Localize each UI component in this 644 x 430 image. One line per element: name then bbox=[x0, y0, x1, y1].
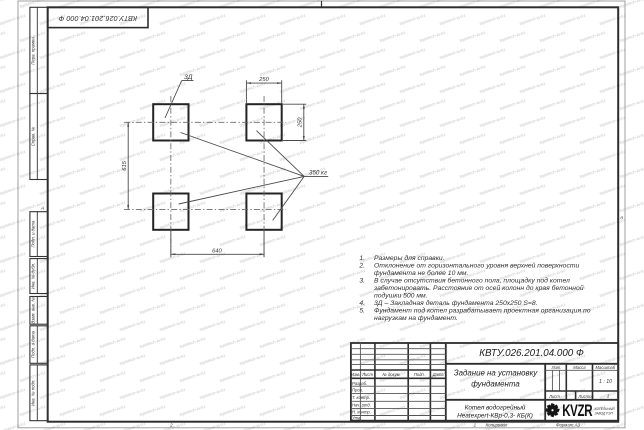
svg-text:Подп. и дата: Подп. и дата bbox=[31, 220, 36, 248]
svg-text:Дата: Дата bbox=[432, 372, 445, 377]
svg-text:250: 250 bbox=[297, 117, 303, 128]
svg-text:Масштаб: Масштаб bbox=[596, 365, 616, 370]
svg-text:А: А bbox=[40, 205, 44, 211]
svg-text:Подп. и дата: Подп. и дата bbox=[31, 330, 36, 358]
svg-text:350 кг: 350 кг bbox=[309, 170, 327, 177]
svg-text:1.: 1. bbox=[359, 255, 365, 262]
svg-text:фундамента не более 10 мм.: фундамента не более 10 мм. bbox=[374, 269, 469, 277]
svg-text:Размеры для справки.: Размеры для справки. bbox=[374, 254, 445, 262]
svg-text:1 : 10: 1 : 10 bbox=[599, 379, 612, 385]
svg-text:Справ. №: Справ. № bbox=[31, 126, 36, 146]
svg-text:1: 1 bbox=[607, 394, 610, 399]
svg-text:А: А bbox=[619, 215, 623, 221]
svg-text:Лист: Лист bbox=[548, 394, 560, 399]
svg-text:5.: 5. bbox=[359, 307, 365, 314]
svg-text:Фундамент под котел разрабатыв: Фундамент под котел разрабатывает проект… bbox=[374, 306, 591, 314]
svg-text:КВТУ.026.201.04.000 Ф: КВТУ.026.201.04.000 Ф bbox=[479, 348, 584, 359]
svg-text:Т. контр.: Т. контр. bbox=[352, 395, 370, 400]
svg-text:Подп.: Подп. bbox=[414, 372, 425, 377]
svg-text:KVZR: KVZR bbox=[562, 402, 592, 421]
svg-text:3Д: 3Д bbox=[184, 74, 193, 81]
svg-text:Формат А3: Формат А3 bbox=[556, 423, 581, 428]
svg-text:Лит.: Лит. bbox=[551, 365, 562, 370]
svg-text:Копировал: Копировал bbox=[486, 423, 508, 428]
svg-text:№ докум.: № докум. bbox=[382, 372, 400, 377]
svg-text:КОТЕЛЬНЫЙ: КОТЕЛЬНЫЙ bbox=[595, 407, 616, 411]
svg-text:4.: 4. bbox=[359, 300, 365, 307]
svg-text:Heatexpert-КВр-0,3- КБ(К): Heatexpert-КВр-0,3- КБ(К) bbox=[457, 413, 533, 420]
svg-text:Инв. № дубл.: Инв. № дубл. bbox=[31, 263, 36, 289]
svg-text:Листов: Листов bbox=[577, 394, 594, 399]
svg-text:250: 250 bbox=[258, 77, 269, 83]
svg-text:забетонировать. Расстояние от: забетонировать. Расстояние от осей колон… bbox=[373, 284, 584, 292]
svg-text:ЗАВОД РЭП: ЗАВОД РЭП bbox=[595, 412, 614, 416]
svg-text:Масса: Масса bbox=[573, 365, 586, 370]
svg-text:Перв. примен.: Перв. примен. bbox=[31, 36, 36, 65]
svg-text:Н. контр.: Н. контр. bbox=[352, 410, 371, 415]
svg-text:КВТУ.026.201.04.000 Ф: КВТУ.026.201.04.000 Ф bbox=[58, 14, 137, 23]
svg-text:Задание на установку: Задание на установку bbox=[454, 368, 539, 377]
svg-text:3Д – Закладная деталь фундамен: 3Д – Закладная деталь фундамента 250х250… bbox=[374, 299, 538, 307]
svg-text:2.: 2. bbox=[358, 262, 365, 269]
svg-text:Инв. № подл.: Инв. № подл. bbox=[31, 379, 36, 406]
svg-text:3.: 3. bbox=[359, 277, 365, 284]
svg-text:Отклонение от горизонтального: Отклонение от горизонтального уровня вер… bbox=[374, 261, 580, 269]
svg-text:В случае отсутствия бетонного: В случае отсутствия бетонного пола, площ… bbox=[374, 276, 570, 284]
svg-text:Взам. инв. №: Взам. инв. № bbox=[31, 297, 36, 324]
svg-text:615: 615 bbox=[122, 160, 128, 170]
svg-text:фундамента: фундамента bbox=[471, 379, 520, 388]
svg-text:подушки 500 мм.: подушки 500 мм. bbox=[374, 291, 428, 299]
svg-text:Изм.: Изм. bbox=[351, 372, 360, 377]
svg-text:2: 2 bbox=[169, 423, 173, 428]
svg-text:Пров.: Пров. bbox=[352, 387, 363, 392]
svg-text:Утв.: Утв. bbox=[352, 416, 362, 421]
svg-text:Нач. отд.: Нач. отд. bbox=[352, 402, 371, 407]
svg-text:Лист: Лист bbox=[361, 372, 373, 377]
svg-text:640: 640 bbox=[212, 248, 222, 254]
svg-text:нагрузкам на фундамент.: нагрузкам на фундамент. bbox=[374, 314, 458, 322]
svg-text:Котел водогрейный: Котел водогрейный bbox=[465, 404, 526, 412]
svg-text:Разраб.: Разраб. bbox=[352, 381, 367, 386]
